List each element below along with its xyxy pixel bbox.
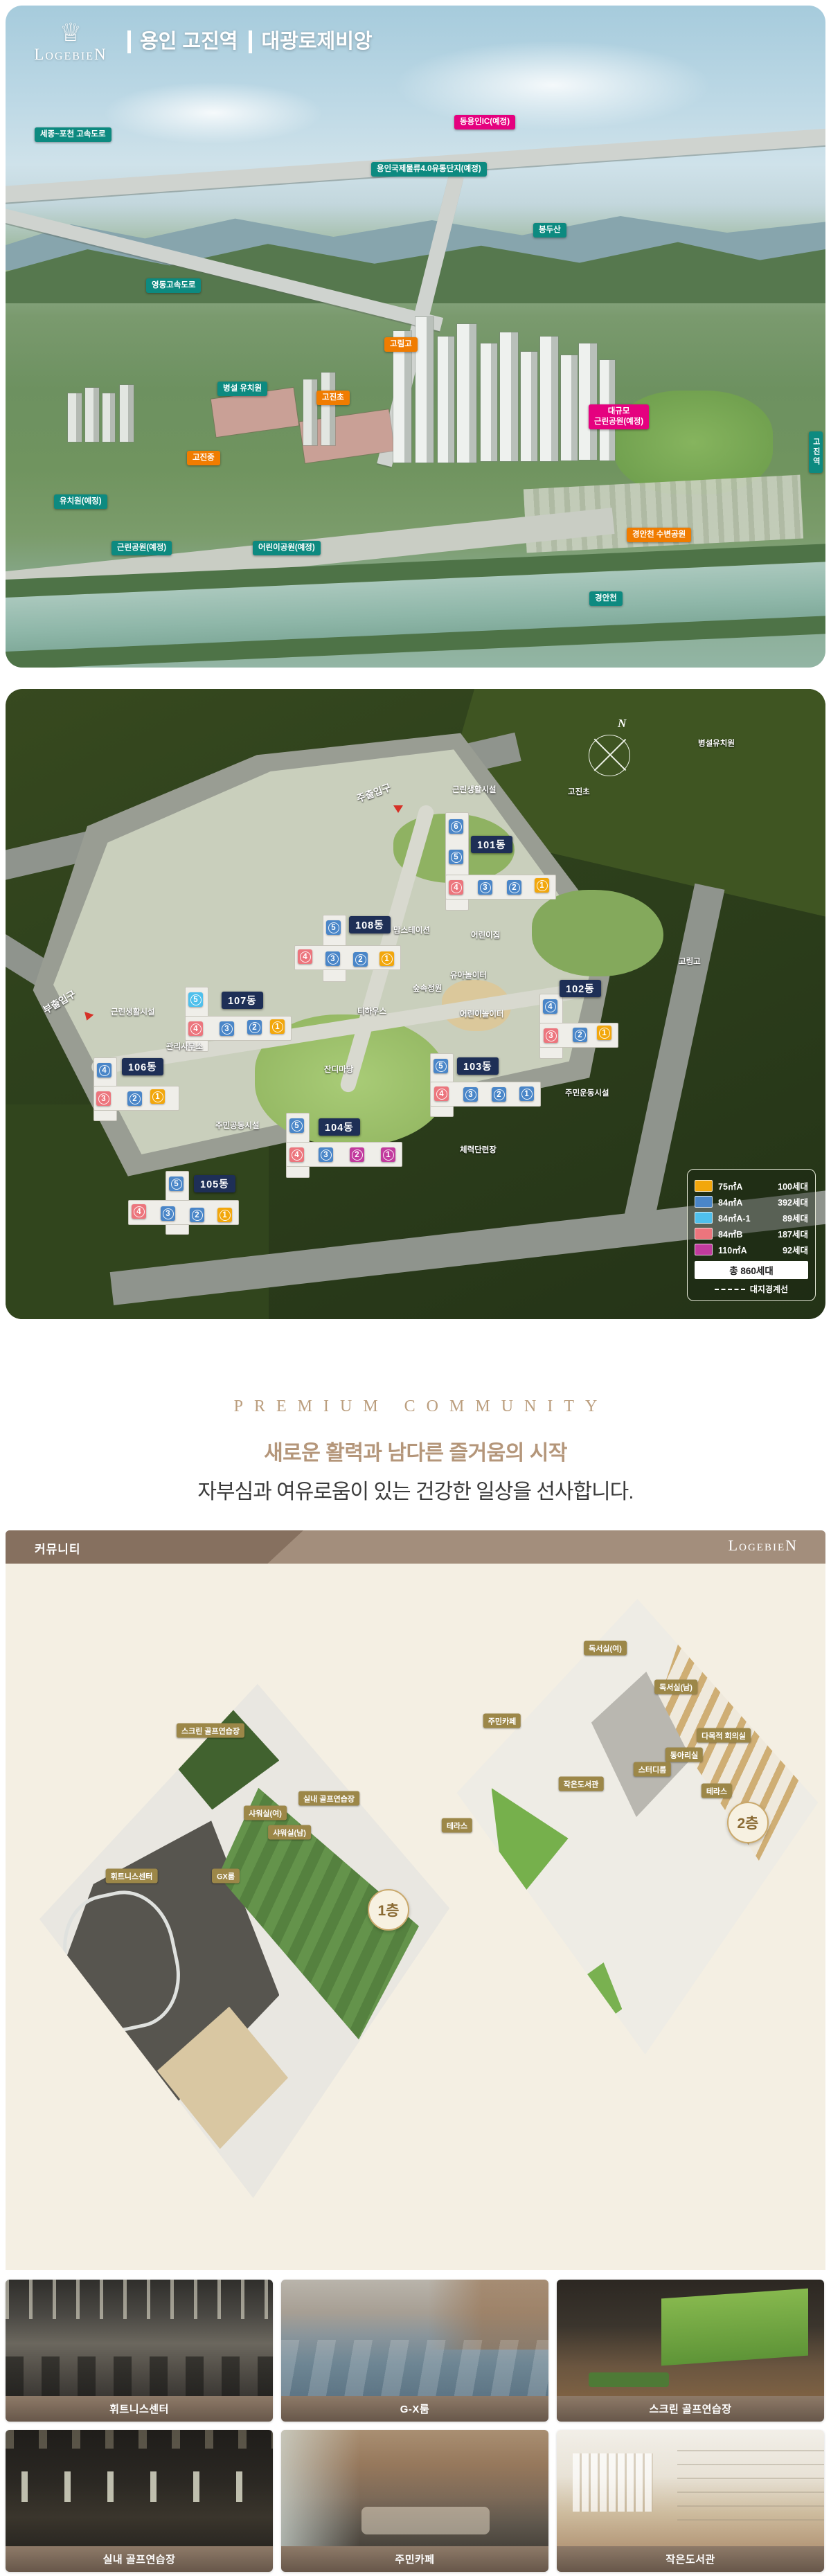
photo-card: G-X룸: [281, 2280, 548, 2422]
site-label: 고림고: [679, 956, 701, 967]
section-headline: 새로운 활력과 남다른 즐거움의 시작: [0, 1435, 831, 1466]
legend-boundary-row: 대지경계선: [695, 1283, 808, 1295]
town-tower: [85, 388, 99, 442]
entrance-marker: [393, 805, 403, 813]
site-label: 체력단련장: [460, 1144, 497, 1155]
terrace-green: [561, 1962, 623, 2040]
aerial-view-section: ♕ LogebieN 용인 고진역 대광로제비앙 세종~포천 고속도로 동용인I…: [6, 6, 825, 668]
legend-row: 84㎡A 392세대: [695, 1195, 808, 1208]
map-label-middleschool: 고진중: [187, 451, 220, 465]
town-tower: [303, 379, 317, 445]
site-label: 병설유치원: [698, 737, 735, 749]
unit-chip: 2: [350, 1147, 364, 1162]
apartment-tower: [415, 317, 434, 463]
site-label: 근린생활시설: [452, 784, 496, 795]
site-label: 관리사무소: [166, 1041, 203, 1052]
site-label: 잔디마당: [324, 1064, 353, 1075]
unit-chip: 5: [169, 1177, 184, 1191]
map-label-yeongdong: 영동고속도로: [146, 278, 201, 293]
floor-badge-2: 2층: [727, 1802, 769, 1843]
unit-chip: 4: [97, 1063, 111, 1077]
site-label: 어린이놀이터: [460, 1008, 503, 1019]
photo-resident-cafe: [281, 2430, 548, 2546]
hero-title: 용인 고진역 대광로제비앙: [127, 30, 373, 53]
unit-type-legend: 75㎡A 100세대 84㎡A 392세대 84㎡A-1 89세대 84㎡B 1…: [687, 1169, 816, 1301]
map-label-river: 경안천: [589, 591, 623, 606]
unit-chip: 4: [289, 1147, 304, 1162]
building-badge-101: 101동: [471, 836, 512, 853]
floorplan-level2: [445, 1584, 830, 2069]
page: ♕ LogebieN 용인 고진역 대광로제비앙 세종~포천 고속도로 동용인I…: [0, 0, 831, 2576]
legend-row: 84㎡A-1 89세대: [695, 1211, 808, 1224]
room-label: 다목적 회의실: [697, 1728, 751, 1743]
unit-chip: 4: [188, 1021, 203, 1036]
section-subline: 자부심과 여유로움이 있는 건강한 일상을 선사합니다.: [0, 1474, 831, 1505]
apartment-tower: [500, 332, 518, 461]
photo-caption: 주민카페: [281, 2546, 548, 2572]
room-label: 독서실(남): [654, 1680, 697, 1694]
unit-chip: 3: [96, 1091, 111, 1106]
unit-chip: 2: [492, 1087, 506, 1102]
unit-chip: 6: [449, 819, 463, 834]
hero-title-brand: 대광로제비앙: [249, 30, 372, 53]
unit-chip: 1: [519, 1086, 534, 1101]
legend-area: 84㎡A: [718, 1195, 772, 1208]
compass-north-label: N: [618, 717, 626, 731]
unit-chip: 5: [188, 992, 203, 1007]
floorplan-level1: [26, 1667, 463, 2215]
legend-total-households: 총 860세대: [695, 1261, 808, 1279]
legend-area: 84㎡B: [718, 1227, 772, 1240]
building-badge-103: 103동: [457, 1057, 499, 1075]
map-label-logistics: 용인국제물류4.0유통단지(예정): [371, 162, 487, 177]
unit-chip: 5: [434, 1059, 448, 1073]
unit-chip: 3: [220, 1021, 234, 1036]
unit-chip: 2: [507, 880, 521, 895]
building-badge-104: 104동: [319, 1118, 360, 1136]
town-tower: [68, 393, 82, 442]
photo-gx-room: [281, 2280, 548, 2396]
building-badge-106: 106동: [122, 1058, 163, 1075]
apartment-tower: [579, 343, 597, 460]
legend-count: 92세대: [783, 1243, 808, 1256]
building-badge-108: 108동: [349, 916, 391, 933]
cloud-shape: [102, 82, 324, 144]
site-label: 유아놀이터: [450, 969, 487, 981]
site-label: 근린생활시설: [111, 1006, 154, 1017]
photo-small-library: [557, 2430, 824, 2546]
legend-count: 89세대: [783, 1211, 808, 1224]
section-eyebrow: PREMIUM COMMUNITY: [0, 1397, 831, 1416]
room-label: GX룸: [212, 1869, 240, 1884]
brand-logo: ♕ LogebieN: [29, 19, 112, 64]
legend-swatch: [695, 1180, 713, 1192]
unit-chip: 3: [544, 1028, 558, 1043]
photo-fitness-center: [6, 2280, 273, 2396]
premium-community-section: PREMIUM COMMUNITY 새로운 활력과 남다른 즐거움의 시작 자부…: [0, 1397, 831, 1505]
site-label: 주민운동시설: [565, 1087, 609, 1098]
map-label-station: 고진역: [809, 431, 823, 473]
apartment-tower: [561, 355, 578, 460]
unit-chip: 1: [535, 878, 549, 893]
unit-chip: 4: [298, 949, 312, 964]
map-label-large-park: 대규모 근린공원(예정): [589, 404, 649, 429]
community-title: 커뮤니티: [35, 1539, 81, 1557]
unit-chip: 3: [325, 951, 340, 966]
map-label-highschool: 고림고: [384, 337, 418, 352]
room-label: 주민카페: [483, 1714, 521, 1728]
legend-row: 75㎡A 100세대: [695, 1179, 808, 1192]
unit-chip: 1: [379, 951, 394, 966]
facility-photos-grid: 휘트니스센터 G-X룸 스크린 골프연습장 실내 골프연습장 주민카페 작은도서…: [6, 2280, 825, 2572]
legend-swatch: [695, 1228, 713, 1240]
site-label: 주민공동시설: [215, 1120, 259, 1131]
photo-caption: 작은도서관: [557, 2546, 824, 2572]
unit-chip: 3: [463, 1087, 478, 1102]
town-tower: [102, 393, 115, 442]
boundary-line-symbol: [715, 1289, 745, 1290]
hero-title-area: 용인 고진역: [127, 30, 238, 53]
unit-chip: 1: [150, 1089, 165, 1104]
map-label-ic: 동용인IC(예정): [454, 115, 515, 129]
unit-chip: 3: [478, 880, 492, 895]
community-section: 커뮤니티 LogebieN 스크린 골프연습장 실내 골프연습장 샤워실(여) …: [6, 1530, 825, 2270]
map-label-kindergarten: 병설 유치원: [217, 382, 267, 396]
legend-swatch: [695, 1196, 713, 1208]
lawn-patch: [532, 890, 663, 976]
site-label: 고진초: [568, 786, 590, 797]
photo-caption: 휘트니스센터: [6, 2396, 273, 2422]
legend-area: 75㎡A: [718, 1179, 772, 1192]
photo-screen-golf: [557, 2280, 824, 2396]
room-label: 휘트니스센터: [106, 1869, 158, 1884]
unit-chip: 5: [449, 850, 463, 864]
town-tower: [120, 385, 134, 442]
unit-chip: 2: [353, 952, 368, 967]
building-badge-102: 102동: [560, 980, 601, 997]
unit-chip: 2: [247, 1020, 262, 1035]
map-label-mountain: 봉두산: [533, 223, 566, 238]
unit-chip: 1: [217, 1208, 232, 1222]
photo-card: 스크린 골프연습장: [557, 2280, 824, 2422]
legend-swatch: [695, 1212, 713, 1224]
terrace-green: [492, 1788, 569, 1914]
photo-card: 주민카페: [281, 2430, 548, 2572]
map-label-elementary: 고진초: [316, 391, 350, 405]
legend-boundary-label: 대지경계선: [750, 1283, 788, 1295]
room-label: 샤워실(남): [268, 1825, 311, 1840]
site-label: 숲속정원: [413, 983, 442, 994]
unit-chip: 5: [289, 1118, 304, 1133]
legend-area: 110㎡A: [718, 1243, 777, 1256]
unit-chip: 4: [449, 880, 463, 895]
apartment-tower: [540, 337, 558, 461]
legend-swatch: [695, 1244, 713, 1255]
map-label-children-park: 어린이공원(예정): [253, 541, 321, 555]
unit-chip: 2: [573, 1028, 587, 1042]
compass-icon: [589, 735, 630, 776]
town-tower: [321, 373, 335, 445]
apartment-tower: [438, 337, 454, 463]
photo-caption: 실내 골프연습장: [6, 2546, 273, 2572]
room-label: 테라스: [442, 1818, 472, 1833]
apartment-tower: [521, 352, 537, 461]
map-label-expressway: 세종~포천 고속도로: [35, 127, 111, 142]
building-badge-107: 107동: [222, 992, 263, 1009]
unit-chip: 2: [127, 1091, 142, 1106]
legend-row: 84㎡B 187세대: [695, 1227, 808, 1240]
apartment-tower: [457, 324, 476, 463]
unit-chip: 1: [381, 1147, 395, 1162]
brand-logo-text: LogebieN: [29, 46, 112, 64]
unit-chip: 5: [326, 920, 341, 935]
legend-count: 100세대: [778, 1179, 808, 1192]
photo-caption: G-X룸: [281, 2396, 548, 2422]
photo-indoor-golf-range: [6, 2430, 273, 2546]
room-label: 독서실(여): [584, 1641, 627, 1656]
site-label: 어린이집: [471, 929, 500, 940]
unit-chip: 3: [161, 1206, 175, 1221]
site-label: 맘스테이션: [393, 924, 430, 936]
floor-badge-1: 1층: [368, 1889, 409, 1931]
map-label-waterside-park: 경안천 수변공원: [627, 528, 691, 542]
legend-area: 84㎡A-1: [718, 1211, 777, 1224]
community-header-bar: 커뮤니티 LogebieN: [6, 1530, 825, 1564]
room-label: 스크린 골프연습장: [177, 1724, 244, 1738]
unit-chip: 1: [597, 1026, 611, 1040]
crown-icon: ♕: [29, 19, 112, 46]
community-body: 스크린 골프연습장 실내 골프연습장 샤워실(여) 샤워실(남) 휘트니스센터 …: [6, 1564, 825, 2270]
legend-count: 392세대: [778, 1195, 808, 1208]
site-plan-section: 6 5 4 3 2 1 101동 4 3 2 1 102동 5 4 3 2 1 …: [6, 689, 825, 1319]
unit-chip: 2: [190, 1208, 204, 1222]
room-label: 샤워실(여): [244, 1806, 287, 1821]
unit-chip: 4: [132, 1204, 146, 1219]
legend-row: 110㎡A 92세대: [695, 1243, 808, 1256]
photo-card: 실내 골프연습장: [6, 2430, 273, 2572]
room-label: 스터디룸: [634, 1762, 671, 1777]
unit-chip: 3: [319, 1147, 333, 1162]
room-label: 동아리실: [665, 1748, 703, 1762]
room-label: 실내 골프연습장: [298, 1791, 359, 1806]
photo-caption: 스크린 골프연습장: [557, 2396, 824, 2422]
building-badge-105: 105동: [194, 1175, 235, 1192]
photo-card: 휘트니스센터: [6, 2280, 273, 2422]
unit-chip: 1: [270, 1019, 285, 1034]
unit-chip: 4: [434, 1086, 449, 1101]
unit-chip: 4: [543, 999, 557, 1014]
photo-card: 작은도서관: [557, 2430, 824, 2572]
apartment-tower: [481, 343, 497, 461]
room-label: 작은도서관: [559, 1777, 604, 1791]
site-label: 티하우스: [357, 1005, 386, 1017]
map-label-kindergarten-planned: 유치원(예정): [54, 494, 107, 509]
cloud-shape: [393, 40, 712, 130]
map-label-neighborhood-park: 근린공원(예정): [111, 541, 172, 555]
community-brand-logo: LogebieN: [729, 1537, 798, 1555]
room-label: 테라스: [702, 1784, 732, 1798]
legend-count: 187세대: [778, 1227, 808, 1240]
